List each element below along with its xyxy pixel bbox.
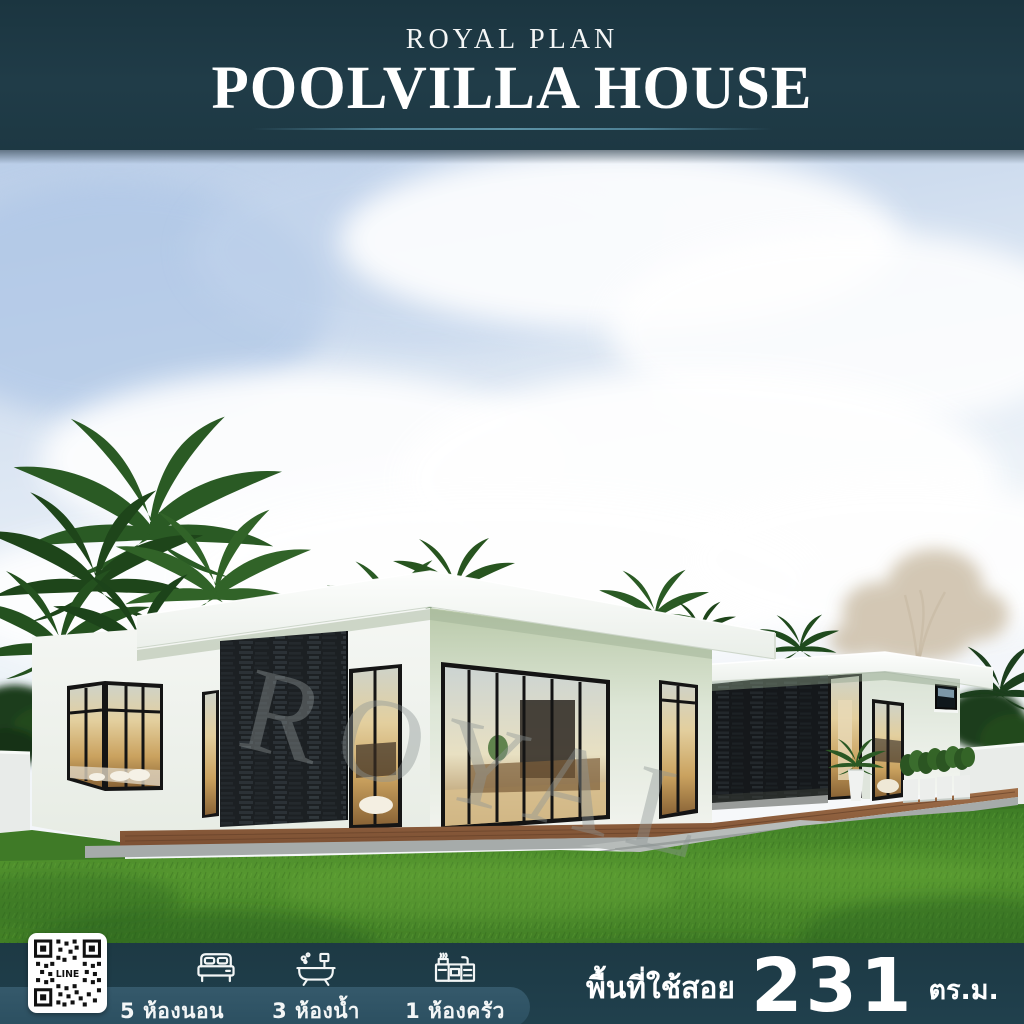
poster: ROYAL PLAN POOLVILLA HOUSE <box>0 0 1024 1024</box>
header-shadow <box>0 150 1024 164</box>
title-underline <box>252 128 772 130</box>
bathrooms-label: 3 ห้องน้ำ <box>246 995 386 1024</box>
qr-line-label: LINE <box>56 969 80 980</box>
header-banner: ROYAL PLAN POOLVILLA HOUSE <box>0 0 1024 150</box>
usable-area: พื้นที่ใช้สอย 231 ตร.ม. <box>586 943 1016 1024</box>
bathtub-icon <box>293 950 339 988</box>
area-unit: ตร.ม. <box>928 968 998 1011</box>
bedrooms-label: 5 ห้องนอน <box>102 995 242 1024</box>
pavilion-small-window <box>934 685 958 713</box>
kitchen-icon <box>431 950 479 988</box>
area-value: 231 <box>751 958 914 1016</box>
brand-name: ROYAL PLAN <box>406 24 618 56</box>
poster-title: POOLVILLA HOUSE <box>212 58 813 119</box>
corner-window <box>67 681 163 791</box>
area-label: พื้นที่ใช้สอย <box>586 965 735 1012</box>
kitchen-label: 1 ห้องครัว <box>385 995 525 1024</box>
qr-pattern: LINE <box>34 939 101 1007</box>
line-qr-code: LINE <box>28 933 107 1013</box>
footer-bar: LINE 5 ห้องนอน 3 ห้องน้ำ <box>0 943 1024 1024</box>
house-render: ROYAL <box>0 150 1024 1024</box>
bed-icon <box>192 950 240 988</box>
